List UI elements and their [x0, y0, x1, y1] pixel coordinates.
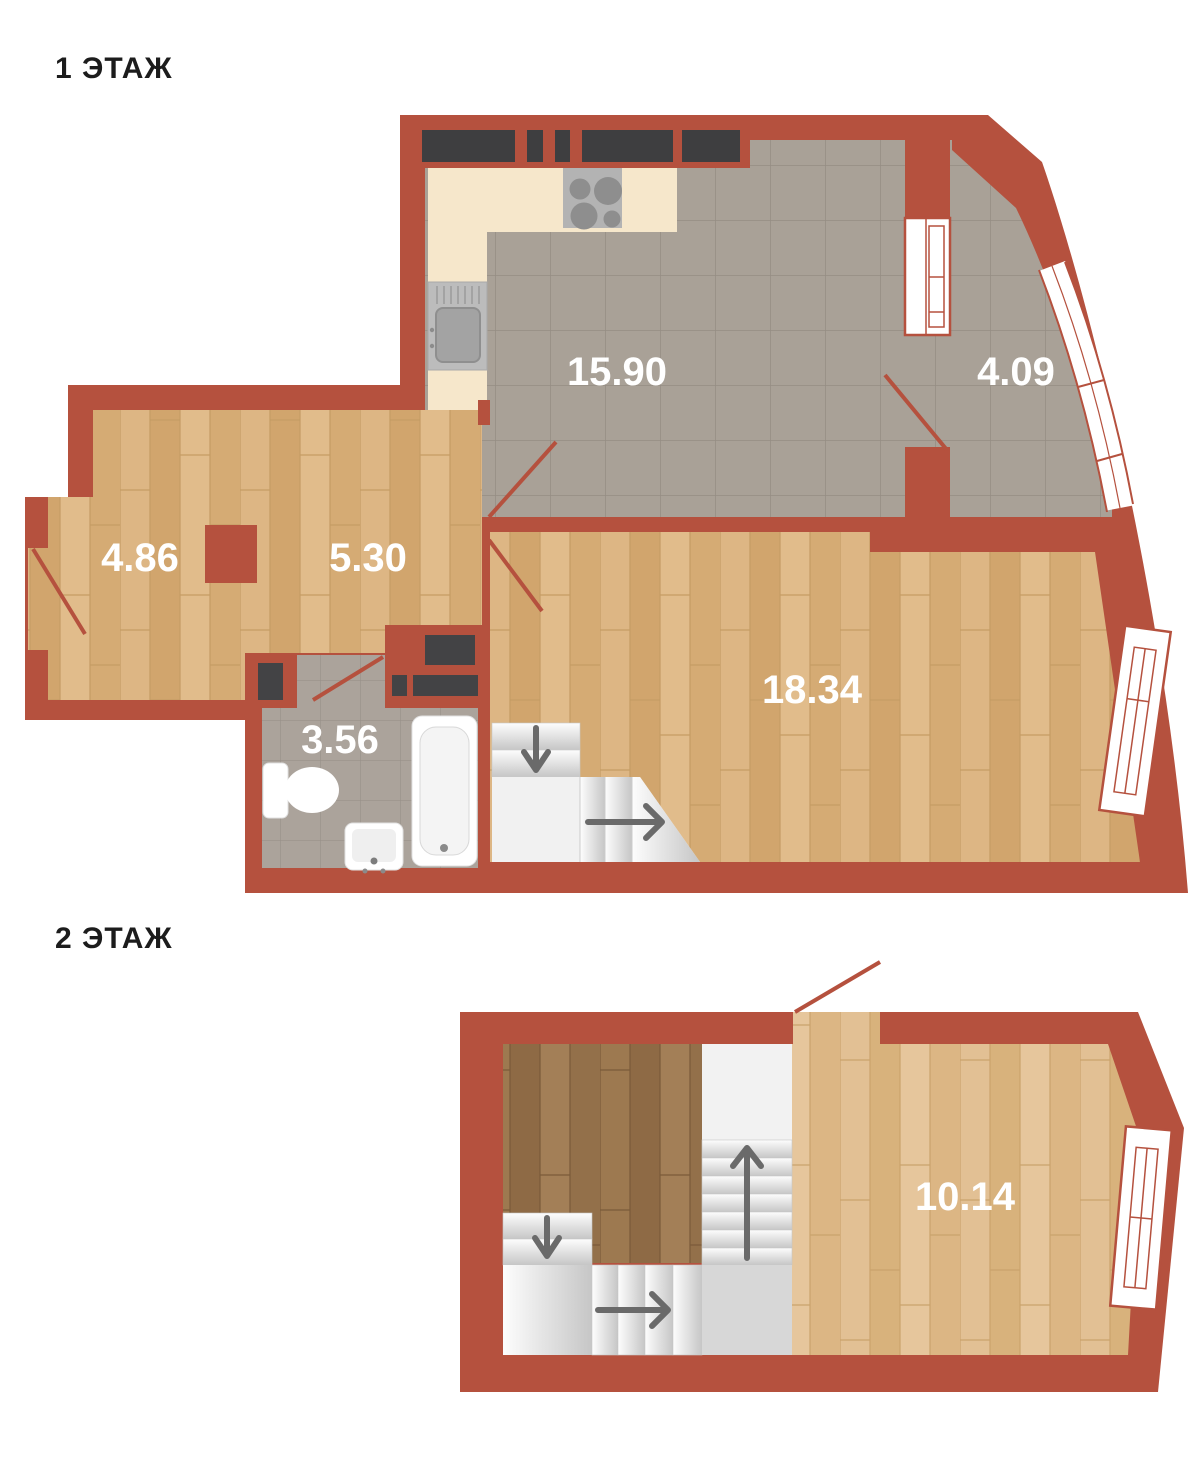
room-area-label-hall: 5.30 [329, 536, 407, 580]
room-area-label-486: 4.86 [101, 536, 179, 580]
wall-pillar [205, 525, 257, 583]
bathtub [412, 716, 477, 866]
kitchen-sink [428, 282, 487, 370]
wall-divider-top [905, 140, 950, 218]
stove [563, 168, 622, 230]
room-area-label-balcony: 4.09 [977, 350, 1055, 394]
floor1-title: 1 ЭТАЖ [55, 52, 173, 85]
room-area-label-kitchen: 15.90 [567, 350, 667, 394]
floor-plan-drawing: 15.90 4.09 4.86 5.30 3.56 18.34 [0, 0, 1201, 1457]
washbasin [345, 823, 403, 874]
window-divider [905, 218, 950, 335]
room-area-label-1014: 10.14 [915, 1175, 1016, 1219]
wall-divider-stub [905, 447, 950, 517]
room-area-label-living: 18.34 [762, 668, 863, 712]
floor2-title: 2 ЭТАЖ [55, 922, 173, 955]
floor2-plan: 10.14 [460, 962, 1184, 1392]
floor1-plan: 15.90 4.09 4.86 5.30 3.56 18.34 [25, 115, 1188, 893]
room-area-label-bathroom: 3.56 [301, 718, 379, 762]
wall-door-stub [478, 400, 490, 425]
door-swing-floor2 [795, 962, 880, 1012]
floor-plan-page: 15.90 4.09 4.86 5.30 3.56 18.34 [0, 0, 1201, 1457]
